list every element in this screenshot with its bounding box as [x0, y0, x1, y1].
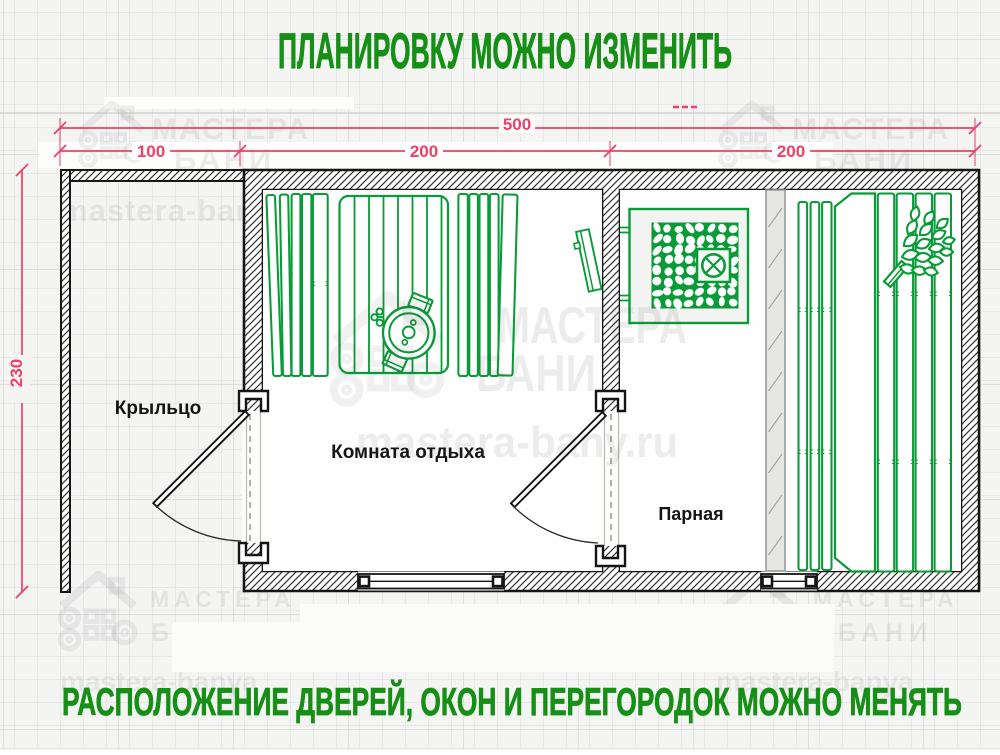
svg-text:mastera-bany.ru: mastera-bany.ru [356, 418, 678, 467]
svg-text:БАНИ: БАНИ [476, 345, 596, 403]
svg-text:100: 100 [137, 142, 165, 161]
svg-text:500: 500 [503, 115, 531, 134]
svg-text:ПЛАНИРОВКУ МОЖНО ИЗМЕНИТЬ: ПЛАНИРОВКУ МОЖНО ИЗМЕНИТЬ [278, 23, 732, 79]
svg-text:РАСПОЛОЖЕНИЕ ДВЕРЕЙ, ОКОН И ПЕ: РАСПОЛОЖЕНИЕ ДВЕРЕЙ, ОКОН И ПЕРЕГОРОДОК … [62, 679, 962, 724]
svg-text:200: 200 [410, 142, 438, 161]
svg-text:Парная: Парная [658, 504, 723, 524]
svg-text:230: 230 [7, 359, 26, 387]
svg-text:200: 200 [777, 142, 805, 161]
svg-text:БАНИ: БАНИ [838, 619, 933, 647]
svg-text:Крыльцо: Крыльцо [115, 398, 201, 419]
